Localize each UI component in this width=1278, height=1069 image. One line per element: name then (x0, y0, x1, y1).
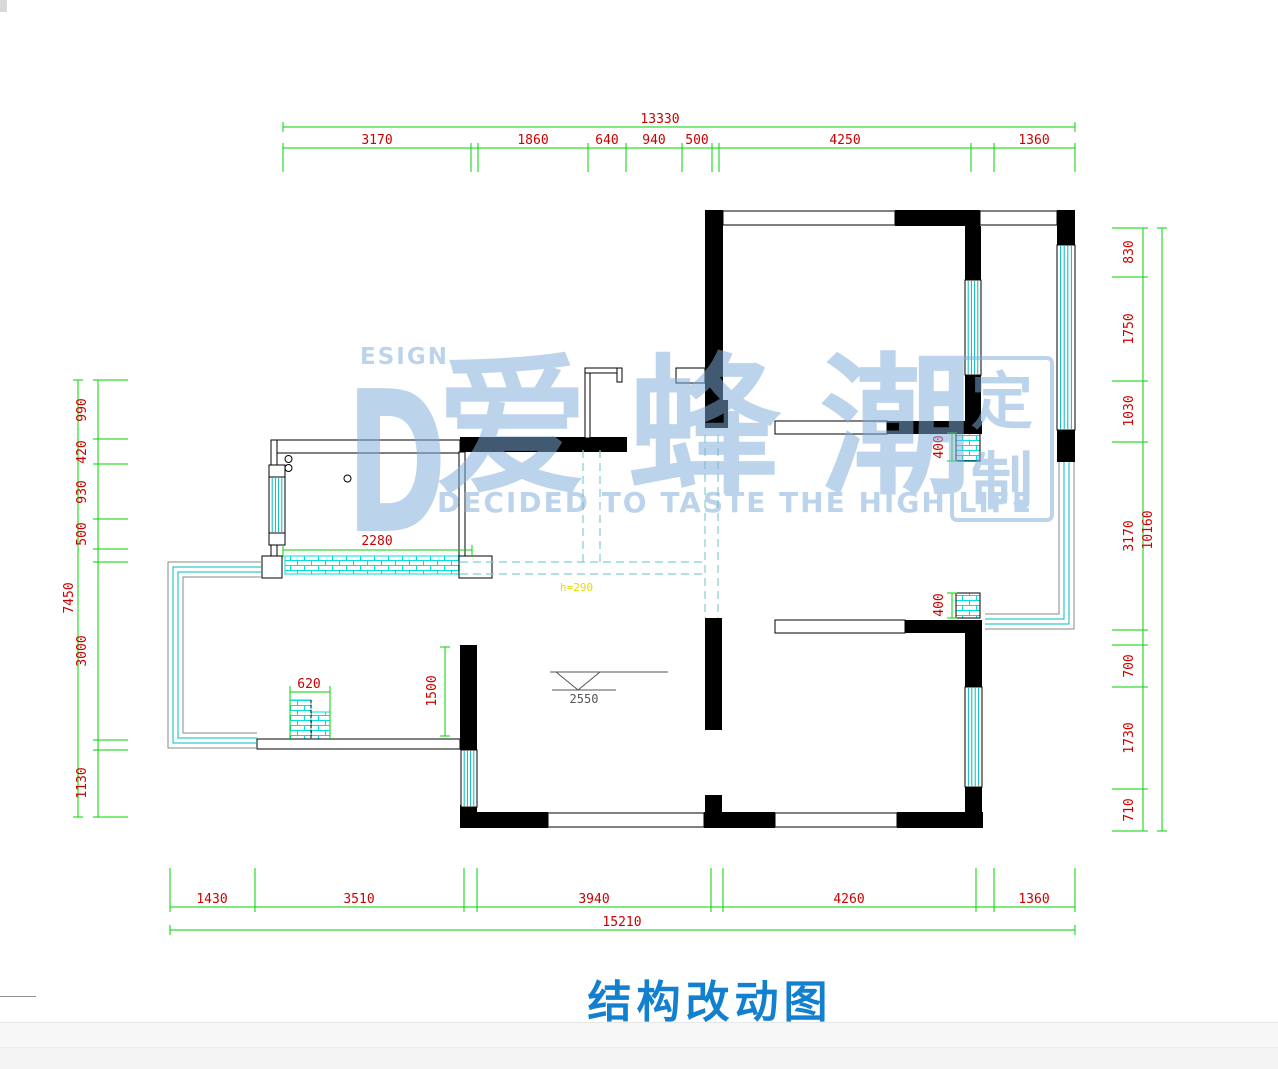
dim-label: 500 (75, 522, 90, 545)
dim-label: 1360 (1018, 133, 1049, 148)
thin-wall-layer (257, 211, 1057, 827)
dim-label: 1730 (1122, 722, 1137, 753)
dim-label: 3170 (361, 133, 392, 148)
dim-label: 830 (1122, 240, 1137, 263)
dim-label: 10160 (1141, 510, 1156, 549)
dimension-text-layer: 1333031701860640940500425013601521014303… (62, 112, 1156, 930)
window-layer (269, 245, 1075, 807)
dim-label: 3000 (75, 635, 90, 666)
dim-label: 7450 (62, 582, 77, 613)
dim-label: 640 (595, 133, 618, 148)
dim-label: 4250 (829, 133, 860, 148)
dim-label: 620 (297, 677, 320, 692)
annotation-layer: 2550h=290 (550, 581, 668, 706)
dim-label: 1860 (517, 133, 548, 148)
dim-label: 13330 (640, 112, 679, 127)
dim-label: 1030 (1122, 395, 1137, 426)
drawing-title: 结构改动图 (450, 966, 970, 1030)
dim-label: 4260 (833, 892, 864, 907)
hatch-layer (285, 433, 980, 740)
dim-label: 1430 (196, 892, 227, 907)
dim-label: 1130 (75, 767, 90, 798)
corner-mark (0, 0, 7, 12)
left-edge-line (0, 996, 36, 997)
drawing-sheet: 1333031701860640940500425013601521014303… (0, 0, 1278, 1069)
dim-label: 3510 (343, 892, 374, 907)
dim-label: 3940 (578, 892, 609, 907)
dim-label: 15210 (602, 915, 641, 930)
bottom-strip-upper (0, 1022, 1278, 1048)
floorplan-drawing: 1333031701860640940500425013601521014303… (0, 0, 1278, 1069)
dim-label: 400 (932, 593, 947, 616)
dim-label: 400 (932, 435, 947, 458)
dim-label: 990 (75, 398, 90, 421)
dim-label: 940 (642, 133, 665, 148)
dim-label: 420 (75, 440, 90, 463)
dim-label: 3170 (1122, 520, 1137, 551)
dim-label: 1500 (425, 675, 440, 706)
walls-layer (460, 210, 1075, 828)
dim-label: 2280 (361, 534, 392, 549)
dim-label: 930 (75, 480, 90, 503)
dim-label: 1360 (1018, 892, 1049, 907)
dim-label: 500 (685, 133, 708, 148)
dim-label: 700 (1122, 654, 1137, 677)
bottom-strip-lower (0, 1047, 1278, 1069)
level-marker-value: 2550 (570, 692, 599, 706)
dim-label: 1750 (1122, 313, 1137, 344)
beam-height-note: h=290 (560, 581, 593, 594)
dim-label: 710 (1122, 798, 1137, 821)
